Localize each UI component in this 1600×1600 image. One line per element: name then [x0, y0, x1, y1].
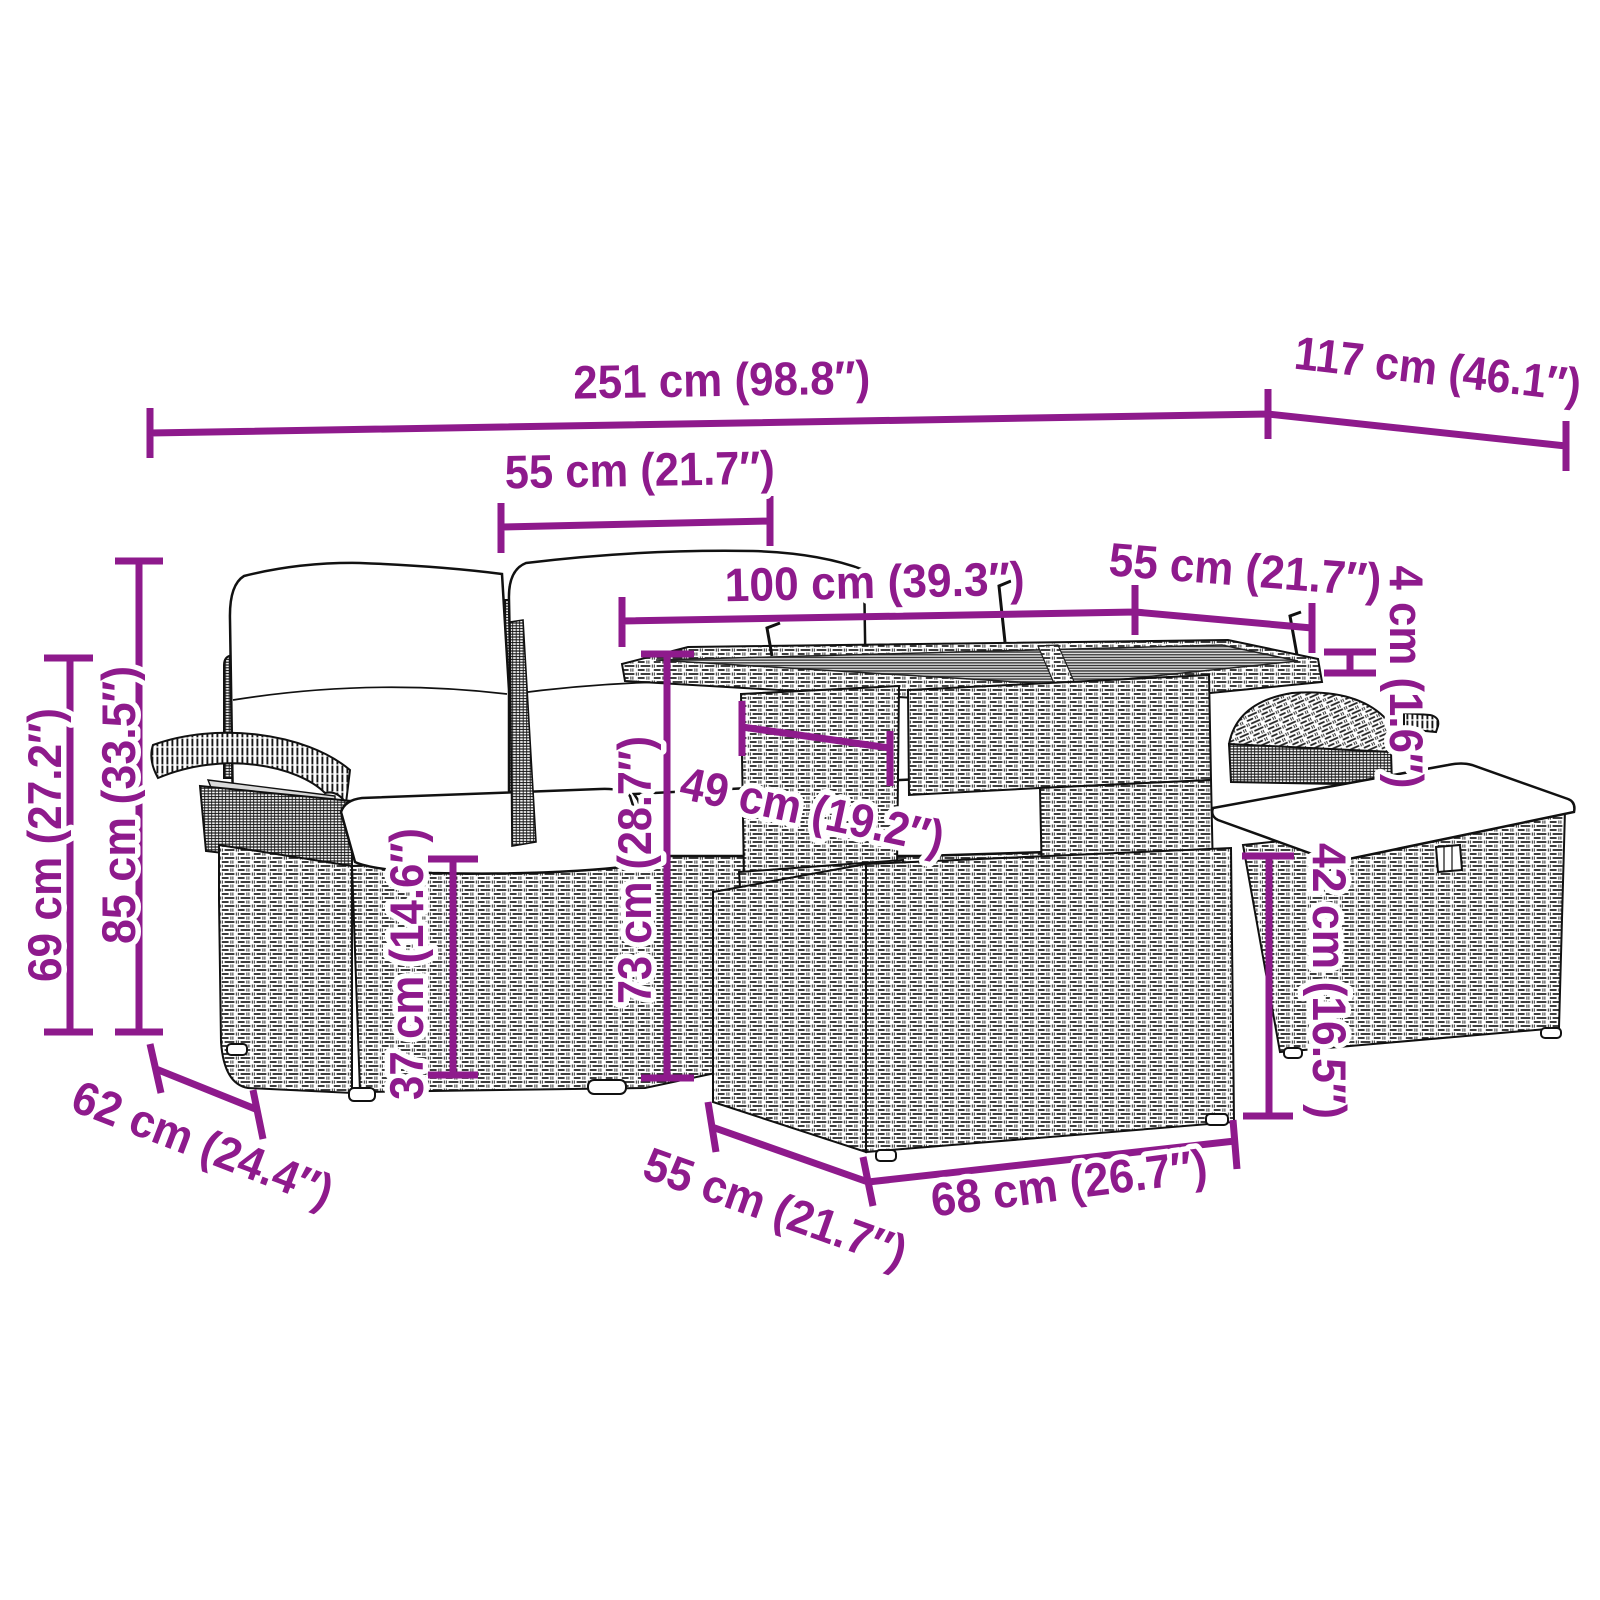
svg-text:42 cm (16.5″): 42 cm (16.5″) [1303, 843, 1356, 1119]
svg-text:251 cm (98.8″): 251 cm (98.8″) [573, 350, 871, 408]
svg-text:69 cm (27.2″): 69 cm (27.2″) [18, 708, 71, 982]
svg-text:55 cm (21.7″): 55 cm (21.7″) [504, 441, 775, 499]
svg-text:37 cm (14.6″): 37 cm (14.6″) [380, 828, 433, 1100]
svg-text:100 cm (39.3″): 100 cm (39.3″) [724, 552, 1025, 612]
svg-text:4 cm (1.6″): 4 cm (1.6″) [1380, 566, 1433, 789]
svg-text:73 cm (28.7″): 73 cm (28.7″) [608, 736, 661, 1004]
svg-text:85 cm (33.5″): 85 cm (33.5″) [92, 666, 145, 944]
